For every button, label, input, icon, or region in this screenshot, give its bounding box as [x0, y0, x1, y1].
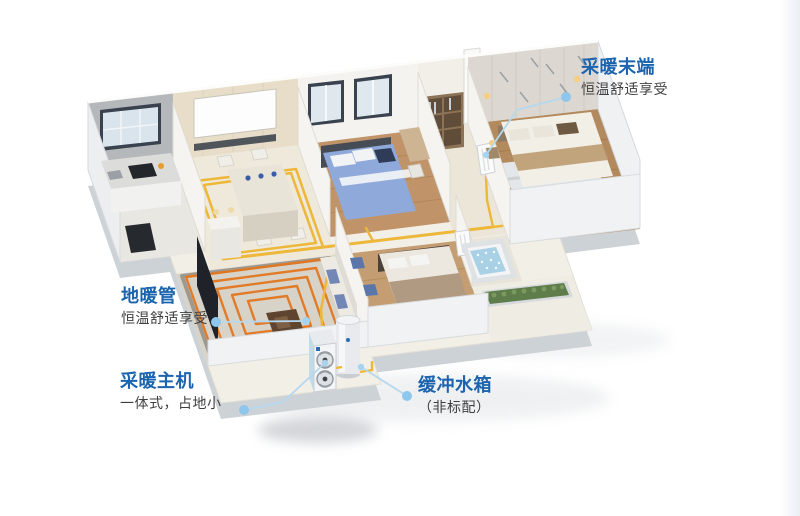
sideboard-lamp [228, 207, 234, 213]
callout-buffer-tank-title: 缓冲水箱 [418, 376, 492, 394]
callout-buffer-tank: 缓冲水箱 （非标配） [418, 376, 492, 414]
kettle [158, 163, 164, 169]
pillow [409, 254, 430, 266]
apartment-isometric-illustration [0, 0, 800, 516]
pipe-pump-to-tank [336, 367, 342, 368]
callout-heating-main-unit: 采暖主机 一体式，占地小 [120, 372, 222, 410]
deck-floor [472, 275, 592, 342]
pillow [532, 125, 555, 138]
callout-heating-terminal-title: 采暖末端 [581, 58, 668, 76]
buffer-tank-cylinder [336, 316, 360, 379]
leader-floor-heating [216, 321, 306, 322]
pillow [508, 128, 531, 141]
callout-heating-terminal-subtitle: 恒温舒适享受 [581, 82, 668, 96]
callout-heating-terminal: 采暖末端 恒温舒适享受 [581, 58, 668, 96]
sideboard-front [211, 227, 241, 260]
sideboard-lamp [213, 209, 219, 215]
heat-pump-outdoor-unit [309, 329, 336, 392]
callout-floor-heating-pipe: 地暖管 恒温舒适享受 [121, 287, 208, 325]
callout-heating-main-unit-subtitle: 一体式，占地小 [120, 396, 222, 410]
wall-lamp [484, 93, 490, 99]
callout-heating-main-unit-title: 采暖主机 [120, 372, 222, 390]
callout-floor-heating-pipe-subtitle: 恒温舒适享受 [121, 311, 208, 325]
pillow [387, 257, 408, 269]
pillow [556, 122, 579, 135]
product-diagram: 采暖末端 恒温舒适享受 地暖管 恒温舒适享受 采暖主机 一体式，占地小 缓冲水箱… [0, 0, 800, 516]
brand-badge [316, 347, 320, 351]
wall-lamp [574, 76, 580, 82]
callout-buffer-tank-subtitle: （非标配） [418, 400, 492, 414]
callout-floor-heating-pipe-title: 地暖管 [121, 287, 208, 305]
bathroom-jacuzzi [464, 241, 514, 281]
